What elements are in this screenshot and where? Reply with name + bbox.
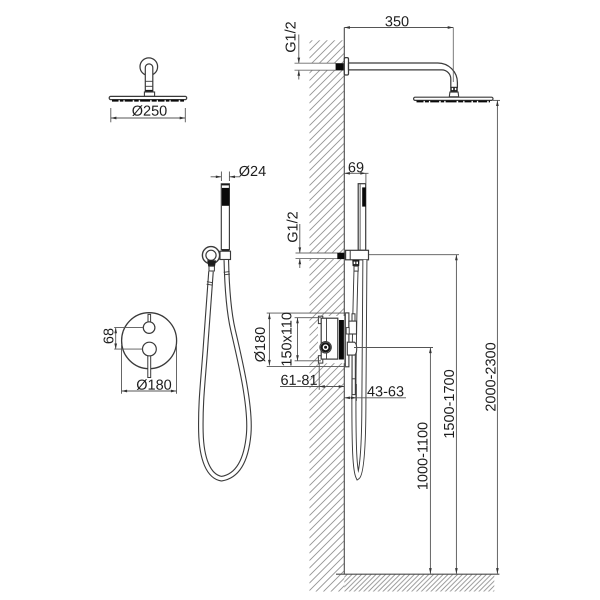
svg-text:1000-1100: 1000-1100 [416,422,432,490]
svg-text:Ø180: Ø180 [253,327,269,362]
svg-text:68: 68 [101,328,117,344]
svg-text:Ø250: Ø250 [132,104,167,120]
svg-text:1500-1700: 1500-1700 [442,369,458,438]
svg-text:69: 69 [348,160,364,176]
svg-text:G1/2: G1/2 [285,211,301,242]
svg-text:61-81: 61-81 [280,373,317,389]
svg-text:2000-2300: 2000-2300 [483,342,499,411]
svg-text:Ø24: Ø24 [239,164,266,180]
svg-text:G1/2: G1/2 [284,21,300,52]
svg-text:Ø180: Ø180 [136,378,171,394]
svg-text:43-63: 43-63 [367,384,404,400]
svg-text:350: 350 [385,14,409,30]
svg-text:150x110: 150x110 [280,312,296,367]
